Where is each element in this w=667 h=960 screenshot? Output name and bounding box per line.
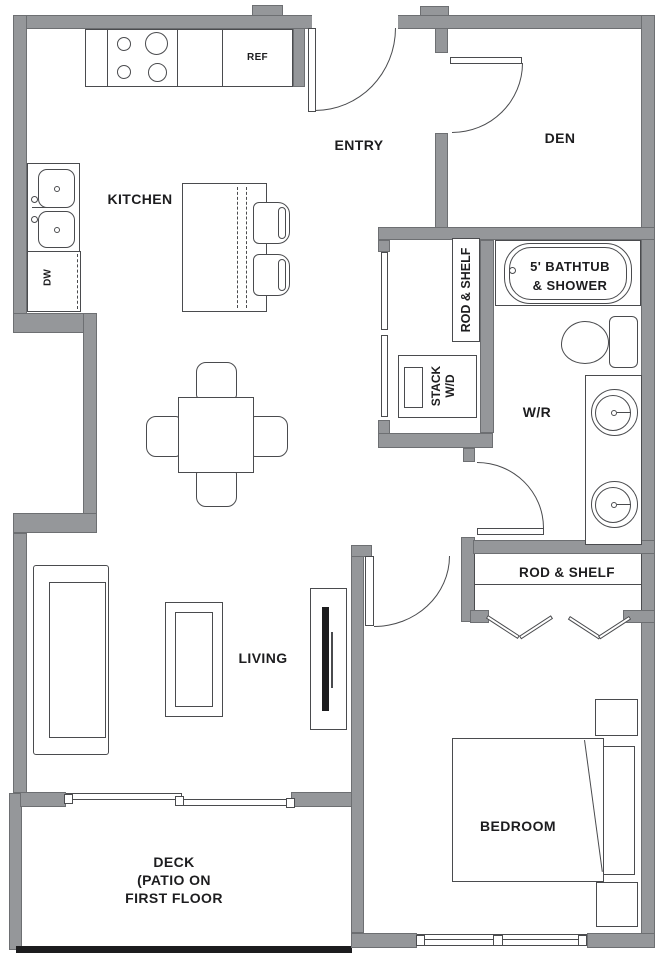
dishwasher-front-dashed — [77, 254, 78, 309]
sink-faucet-lever — [32, 207, 54, 208]
stack-wd-line1: STACK — [429, 366, 443, 406]
bed — [452, 738, 604, 882]
wall-left-lower — [13, 533, 27, 793]
vanity-faucet-2 — [611, 502, 617, 508]
island-overhang-dash-1 — [237, 187, 238, 308]
island-overhang-dash-2 — [246, 187, 247, 308]
wall-den-left-lower — [435, 133, 448, 228]
dw-label: DW — [43, 258, 54, 298]
wall-recess-side — [83, 313, 97, 533]
bedroom-closet-shelf-line — [475, 584, 642, 585]
room-label-den: DEN — [515, 130, 605, 146]
entry-closet-rod-shelf-label: ROD & SHELF — [459, 220, 473, 360]
wall-deck-top-right — [291, 792, 353, 807]
bedroom-window-tick-mid — [493, 935, 503, 946]
wr-door-leaf — [477, 528, 544, 535]
bedroom-closet-inner-left — [474, 554, 475, 610]
stack-wd-label: STACK W/D — [429, 331, 457, 441]
wall-top-notch-right — [420, 6, 449, 16]
dining-chair-right — [251, 416, 288, 457]
laundry-door-panel-top — [381, 252, 388, 330]
vanity-faucet-1 — [611, 410, 617, 416]
stove-burner-large — [145, 32, 168, 55]
deck-line2: (PATIO ON — [137, 872, 211, 888]
stack-wd-line2: W/D — [443, 374, 457, 397]
wall-bedroom-bottom-right — [587, 933, 655, 948]
stove-burner-small-2 — [117, 65, 131, 79]
room-label-kitchen: KITCHEN — [95, 191, 185, 207]
sliding-door-panel-2 — [180, 799, 292, 806]
toilet-bowl — [561, 321, 609, 364]
island-stool-2-back — [278, 259, 286, 291]
wall-counter-stub — [293, 28, 305, 87]
stove-burner-medium — [148, 63, 167, 82]
ref-label: REF — [222, 52, 293, 63]
wall-right — [641, 15, 655, 948]
sink-drain-bottom — [54, 227, 60, 233]
counter-divider-2 — [177, 29, 178, 87]
floor-plan: REF DW ROD & SHELF STACK W/D 5' BATHTUB … — [0, 0, 667, 960]
toilet-tank — [609, 316, 638, 368]
bedroom-closet-inner-right — [641, 554, 642, 610]
bed-pillow — [603, 746, 635, 875]
deck-edge-line — [16, 946, 352, 953]
room-label-deck: DECK (PATIO ON FIRST FLOOR — [98, 853, 250, 907]
wall-laundry-left-top-stub — [378, 240, 390, 252]
bedroom-window-tick-right — [578, 935, 587, 946]
closet-bifold-2a — [568, 616, 601, 640]
island-stool-1-back — [278, 207, 286, 239]
wall-recess-bottom — [13, 513, 97, 533]
wall-deck-left — [9, 793, 22, 950]
wall-deck-top-left — [20, 792, 66, 807]
vanity-faucet-1-spout — [617, 412, 631, 413]
wall-living-bedroom — [351, 545, 364, 933]
closet-bifold-2b — [598, 616, 631, 640]
wall-bath-top — [378, 227, 655, 240]
sliding-door-handle-left — [64, 794, 73, 804]
closet-bifold-1a — [486, 615, 520, 639]
wall-top-notch-left — [252, 5, 283, 16]
tv-screen — [322, 607, 329, 711]
nightstand-top — [595, 699, 638, 736]
bedroom-door-leaf — [365, 556, 374, 626]
laundry-door-panel-bottom — [381, 335, 388, 417]
room-label-bedroom: BEDROOM — [458, 818, 578, 834]
tv-stand — [331, 632, 333, 688]
bathtub-label: 5' BATHTUB & SHOWER — [505, 257, 635, 295]
counter-divider-1 — [107, 29, 108, 87]
vanity-faucet-2-spout — [617, 504, 631, 505]
deck-line1: DECK — [153, 854, 194, 870]
bedroom-closet-label: ROD & SHELF — [487, 565, 647, 580]
dining-chair-bottom — [196, 470, 237, 507]
sliding-door-handle-right — [286, 798, 295, 808]
dining-chair-left — [146, 416, 180, 457]
room-label-entry: ENTRY — [314, 137, 404, 153]
room-label-wr: W/R — [492, 404, 582, 420]
deck-line3: FIRST FLOOR — [125, 890, 223, 906]
bedroom-door-swing — [374, 556, 450, 627]
den-door-swing — [452, 63, 523, 133]
sofa-seat — [49, 582, 106, 738]
sliding-door-panel-1 — [66, 793, 182, 800]
wr-door-swing — [477, 462, 544, 528]
dining-table — [178, 397, 254, 473]
sink-drain-top — [54, 186, 60, 192]
nightstand-bottom — [596, 882, 638, 927]
wall-left-upper — [13, 15, 27, 333]
stack-washer-dryer-detail — [404, 367, 423, 408]
bathtub-line2: & SHOWER — [533, 278, 608, 293]
dishwasher — [27, 251, 81, 312]
room-label-living: LIVING — [218, 650, 308, 666]
stove-burner-small-1 — [117, 37, 131, 51]
bedroom-window-tick-left — [416, 935, 425, 946]
sink-faucet-2 — [31, 216, 38, 223]
closet-bifold-1b — [519, 615, 553, 639]
dining-chair-top — [196, 362, 237, 399]
sink-faucet-1 — [31, 196, 38, 203]
wall-den-left-upper — [435, 28, 448, 53]
sliding-door-handle-mid — [175, 796, 184, 806]
wall-bedroom-bottom-left — [351, 933, 417, 948]
wall-wr-door-stub — [463, 448, 475, 462]
bathtub-line1: 5' BATHTUB — [530, 259, 610, 274]
entry-door-swing — [315, 28, 396, 111]
coffee-table-inner — [175, 612, 213, 707]
